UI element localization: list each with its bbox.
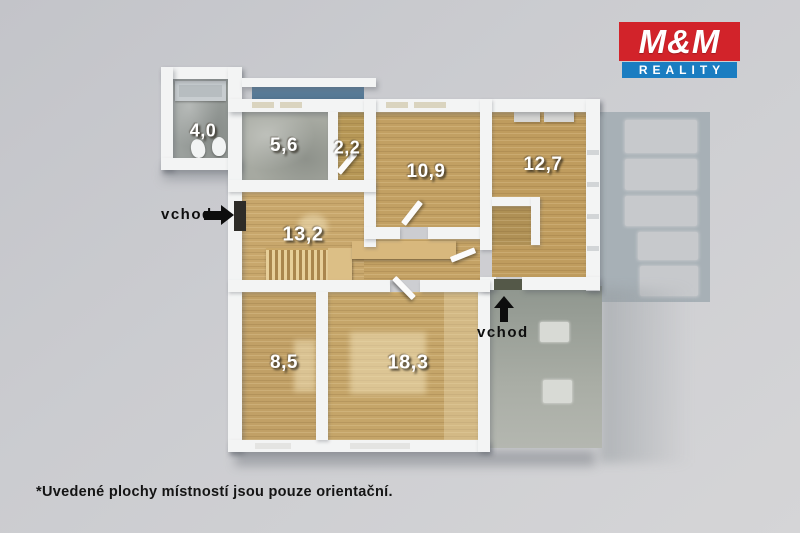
room-area-label: 2,2 xyxy=(334,138,361,159)
shadow-window-hole xyxy=(625,159,697,190)
wall-right-windows xyxy=(586,99,600,291)
wall-lower-rooms-top xyxy=(420,280,490,292)
footnote-text: *Uvedené plochy místností jsou pouze ori… xyxy=(36,484,393,500)
wall-hall-top xyxy=(228,180,376,192)
room-area-label: 12,7 xyxy=(524,154,563,176)
mm-reality-logo: M&M REALITY xyxy=(619,22,740,78)
room-area-label: 4,0 xyxy=(190,121,217,142)
arrow-shaft xyxy=(500,308,508,322)
window-sill xyxy=(350,443,410,449)
wall-bedroom-bottom xyxy=(364,227,400,239)
building-cast-shadow xyxy=(598,112,710,302)
window-sill xyxy=(386,102,408,108)
window-mullion xyxy=(587,214,599,219)
window-sill xyxy=(252,102,274,108)
entrance-doorway-shadow xyxy=(494,279,522,290)
wall-rooms-divider xyxy=(316,292,328,440)
wall-wc-bedroom xyxy=(364,99,376,247)
wall-lower-rooms-top xyxy=(228,280,390,292)
floorplan-render: 4,0 5,6 2,2 10,9 12,7 13,2 8,5 18,3 vcho… xyxy=(0,0,800,533)
wall-bedroom-bottom xyxy=(428,227,480,239)
door-mat xyxy=(543,380,572,403)
wall-vestibule-bottom xyxy=(522,277,600,290)
cabinet xyxy=(544,112,574,122)
floor-closet xyxy=(492,206,531,245)
floor-bedroom-right xyxy=(492,112,586,277)
wall-living-right xyxy=(478,280,490,452)
wall-bedroom-right-left xyxy=(480,99,492,250)
shadow-window-hole xyxy=(638,232,698,260)
arrow-right-icon xyxy=(204,205,236,225)
wall-main-left xyxy=(228,67,242,452)
window-mullion xyxy=(587,150,599,155)
entrance-label-bottom: vchod xyxy=(477,324,529,341)
room-area-label: 13,2 xyxy=(283,224,324,247)
arrow-head xyxy=(494,296,514,308)
room-area-label: 18,3 xyxy=(388,352,429,375)
arrow-shaft xyxy=(204,211,221,220)
stair-landing xyxy=(328,248,352,281)
room-area-label: 10,9 xyxy=(407,161,446,183)
arrow-up-icon xyxy=(494,296,514,324)
window-sill xyxy=(280,102,302,108)
building-bottom-shade xyxy=(235,450,595,466)
window-mullion xyxy=(587,182,599,187)
shadow-window-hole xyxy=(625,196,697,226)
logo-reality-text: REALITY xyxy=(622,62,737,78)
window-mullion xyxy=(587,246,599,251)
room-area-label: 8,5 xyxy=(270,352,298,374)
arrow-head xyxy=(221,205,234,225)
window-sill xyxy=(255,443,291,449)
room-area-label: 5,6 xyxy=(270,135,298,157)
living-room-light-strip xyxy=(444,292,478,440)
wall-terrace-parapet xyxy=(242,78,376,87)
cabinet xyxy=(514,112,540,122)
logo-mm-text: M&M xyxy=(619,22,740,61)
shadow-window-hole xyxy=(625,120,697,153)
bathtub xyxy=(175,81,226,101)
wall-closet-right xyxy=(531,197,540,245)
window-sill xyxy=(414,102,446,108)
staircase xyxy=(266,248,328,284)
door-mat xyxy=(540,322,569,342)
ground-shade-right xyxy=(600,288,690,463)
wall-annex-left xyxy=(161,67,173,170)
